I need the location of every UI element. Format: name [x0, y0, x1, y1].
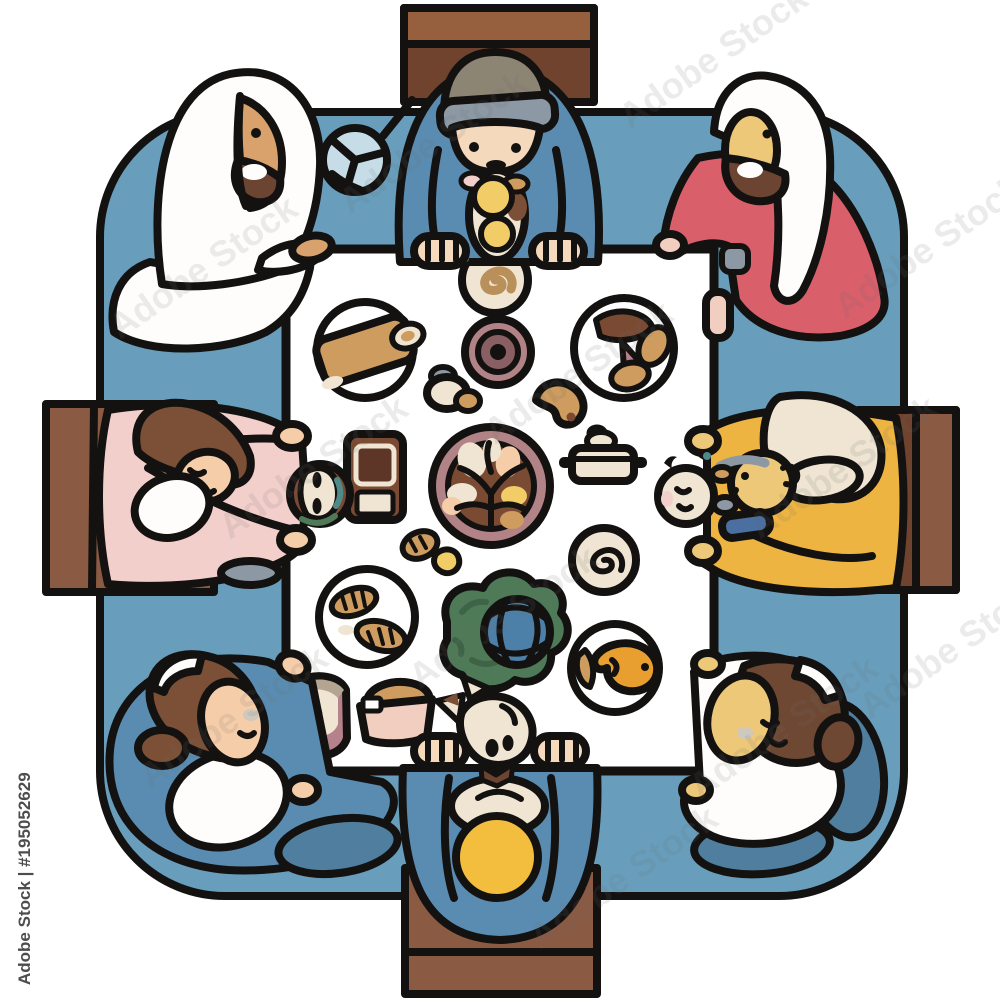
food-fish-plate [571, 624, 659, 712]
hand-lower [688, 539, 718, 563]
hand-lower [280, 528, 312, 552]
food-croissant-plate [319, 569, 415, 665]
mouth [737, 162, 763, 178]
hand-upper [694, 653, 722, 675]
eye-left [469, 142, 479, 152]
eye-right [511, 143, 521, 153]
forearm [706, 292, 730, 338]
hand-lower [288, 778, 318, 802]
food-layered-dip [465, 319, 531, 385]
eye [251, 128, 261, 138]
skirt [221, 561, 279, 585]
baby-ear [661, 491, 673, 507]
mouth [241, 164, 267, 180]
cup [722, 246, 748, 272]
hand [656, 234, 684, 256]
eye [741, 472, 749, 480]
watermark-asset-id: Adobe Stock | #195052629 [15, 772, 34, 985]
bald-head [456, 816, 538, 898]
illustration-canvas: Adobe Stock Adobe Stock Adobe Stock Adob… [0, 0, 1000, 1000]
hand-upper [688, 429, 718, 453]
family-dinner-top-view: Adobe Stock Adobe Stock Adobe Stock Adob… [0, 0, 1000, 1000]
eye [763, 130, 772, 139]
hand-upper [276, 424, 308, 448]
food-centerpiece-platter [432, 427, 550, 545]
